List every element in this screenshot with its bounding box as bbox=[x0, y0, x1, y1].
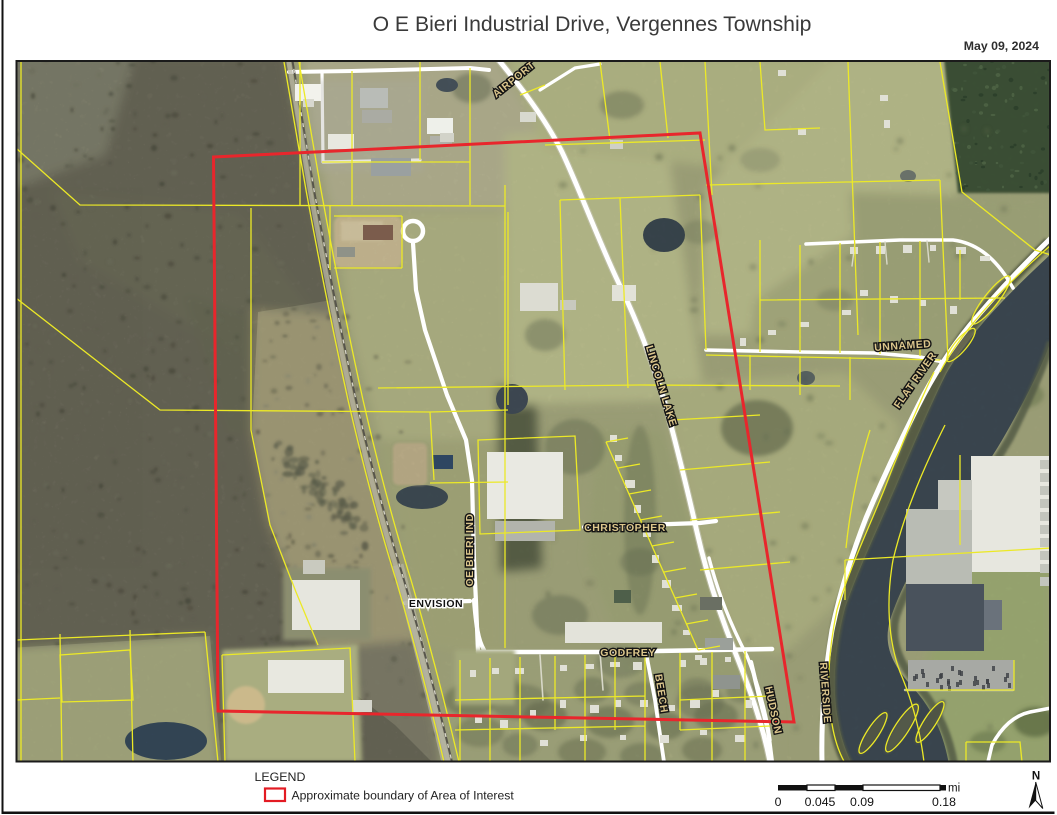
svg-text:ENVISION: ENVISION bbox=[409, 598, 463, 610]
svg-text:GODFREY: GODFREY bbox=[600, 647, 655, 659]
svg-text:0.09: 0.09 bbox=[850, 795, 874, 809]
svg-text:O E Bieri Industrial Drive, Ve: O E Bieri Industrial Drive, Vergennes To… bbox=[373, 13, 812, 36]
svg-text:mi: mi bbox=[948, 783, 960, 795]
svg-text:0: 0 bbox=[775, 795, 782, 809]
svg-text:0.045: 0.045 bbox=[805, 795, 836, 809]
svg-text:Approximate boundary of Area o: Approximate boundary of Area of Interest bbox=[292, 789, 515, 803]
svg-text:N: N bbox=[1032, 771, 1040, 783]
svg-text:May 09, 2024: May 09, 2024 bbox=[964, 39, 1039, 53]
svg-text:LEGEND: LEGEND bbox=[255, 770, 306, 784]
svg-text:0.18: 0.18 bbox=[932, 795, 956, 809]
svg-text:CHRISTOPHER: CHRISTOPHER bbox=[584, 522, 666, 534]
svg-text:OE BIERI IND: OE BIERI IND bbox=[464, 513, 476, 586]
